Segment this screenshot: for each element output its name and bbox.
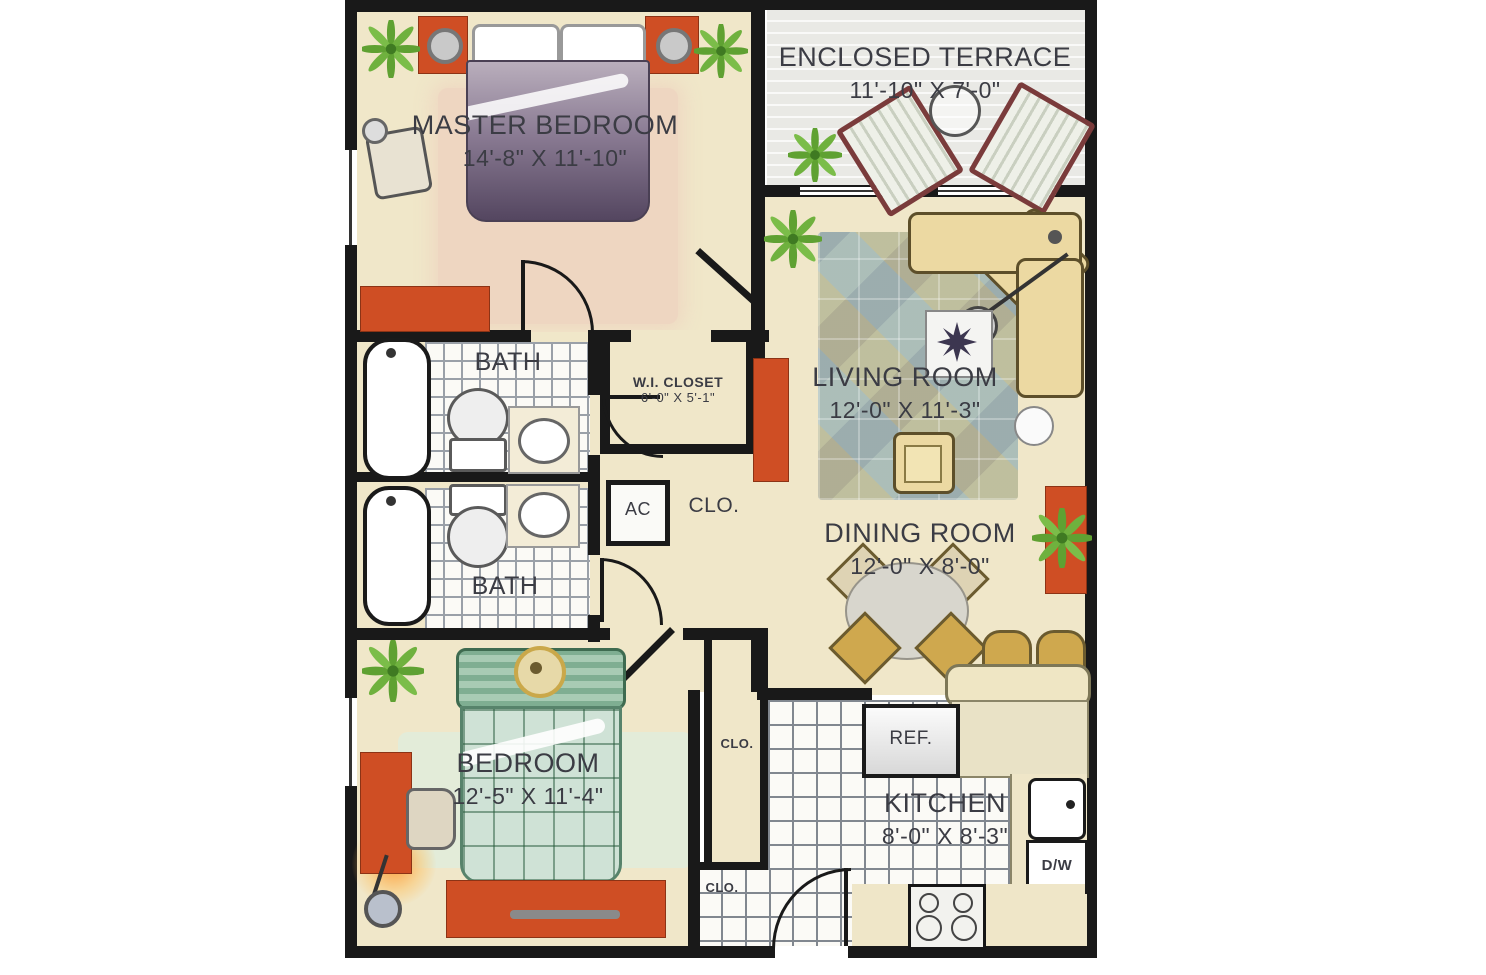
faucet-icon (1066, 800, 1075, 809)
wall-kitchen-top (757, 688, 872, 700)
wall-wic-bottom (600, 444, 756, 454)
palm-plant-icon (362, 640, 424, 702)
refrigerator: REF. (862, 704, 960, 778)
room-name: ENCLOSED TERRACE (770, 42, 1080, 73)
wall-baths-right-b (588, 455, 600, 555)
living-room-label: LIVING ROOM 12'-0" X 11'-3" (775, 362, 1035, 423)
palm-plant-icon (694, 24, 748, 78)
lamp-finial (1048, 230, 1062, 244)
tub-drain-icon (386, 348, 396, 358)
window-line (349, 698, 352, 786)
bath-lower-label: BATH (445, 572, 565, 601)
bath-upper-label: BATH (448, 348, 568, 377)
refrigerator-label: REF. (866, 728, 956, 750)
master-door-leaf (521, 260, 525, 332)
window-line (349, 150, 352, 245)
palm-plant-icon (788, 128, 842, 182)
kitchen-counter-bottom-right (980, 884, 1085, 946)
palm-plant-icon (362, 20, 420, 78)
wall-baths-right-a (588, 330, 600, 395)
burner-icon (916, 915, 942, 941)
kitchen-counter-top (950, 700, 1089, 778)
wall-top-terrace (751, 0, 1097, 10)
tub-drain-icon (386, 496, 396, 506)
master-bedroom-label: MASTER BEDROOM 14'-8" X 11'-10" (395, 110, 695, 171)
wall-bottom-left (345, 946, 775, 958)
wall-entry-top (688, 862, 768, 870)
room-dims: 12'-0" X 11'-3" (775, 397, 1035, 423)
headboard-medallion-center (530, 662, 542, 674)
sink-basin (518, 492, 570, 538)
burner-icon (951, 915, 977, 941)
wall-master-terrace (751, 0, 765, 197)
room-name: LIVING ROOM (775, 362, 1035, 393)
burner-icon (919, 893, 939, 913)
bath-lower-door-leaf (600, 558, 604, 622)
wall-closet-top (683, 628, 768, 640)
dishwasher-label: D/W (1029, 857, 1085, 874)
ac-label: AC (611, 499, 665, 520)
entry-closet-label: CLO. (696, 880, 748, 895)
entry-door-leaf (844, 868, 848, 946)
room-name: BEDROOM (398, 748, 658, 779)
wall-bedroom-closet-left (704, 638, 712, 870)
room-name: W.I. CLOSET (606, 374, 750, 390)
hall-closet-label: CLO. (674, 494, 754, 518)
room-name: DINING ROOM (775, 518, 1065, 549)
wall-top-master (345, 0, 757, 12)
floor-lamp-icon (364, 890, 402, 928)
lamp-right-icon (656, 28, 692, 64)
ac-closet: AC (606, 480, 670, 546)
bedroom-dresser (446, 880, 666, 938)
bathtub (363, 338, 431, 480)
lamp-left-icon (427, 28, 463, 64)
toilet-tank (449, 438, 507, 472)
terrace-label: ENCLOSED TERRACE 11'-10" X 7'-0" (770, 42, 1080, 103)
wi-closet-label: W.I. CLOSET 6'-0" X 5'-1" (606, 374, 750, 406)
wall-bedroom-top (345, 628, 610, 640)
master-side-table (362, 118, 388, 144)
room-name: KITCHEN (845, 788, 1045, 819)
room-dims: 6'-0" X 5'-1" (606, 391, 750, 406)
armchair-cushion (904, 445, 942, 483)
sink-basin (518, 418, 570, 464)
master-dresser (360, 286, 490, 332)
dining-room-label: DINING ROOM 12'-0" X 8'-0" (775, 518, 1065, 579)
room-dims: 8'-0" X 8'-3" (845, 823, 1045, 849)
room-dims: 12'-5" X 11'-4" (398, 783, 658, 809)
kitchen-label: KITCHEN 8'-0" X 8'-3" (845, 788, 1045, 849)
kitchen-counter-bottom-left (852, 884, 908, 946)
room-dims: 14'-8" X 11'-10" (395, 145, 695, 171)
burner-icon (953, 893, 973, 913)
dresser-handle (510, 910, 620, 919)
room-dims: 12'-0" X 8'-0" (775, 553, 1065, 579)
bathtub (363, 486, 431, 626)
palm-plant-icon (764, 210, 822, 268)
bedroom-closet-label: CLO. (712, 736, 762, 751)
table-centerpiece-icon (937, 322, 977, 362)
floor-plan: MASTER BEDROOM 14'-8" X 11'-10" ENCLOSED… (0, 0, 1486, 975)
stove (908, 884, 986, 950)
room-name: MASTER BEDROOM (395, 110, 695, 141)
wall-bedroom-right (688, 690, 700, 946)
wall-bedroom-closet-right (760, 638, 768, 870)
bedroom-label: BEDROOM 12'-5" X 11'-4" (398, 748, 658, 809)
toilet-bowl (447, 506, 509, 568)
room-dims: 11'-10" X 7'-0" (770, 77, 1080, 103)
